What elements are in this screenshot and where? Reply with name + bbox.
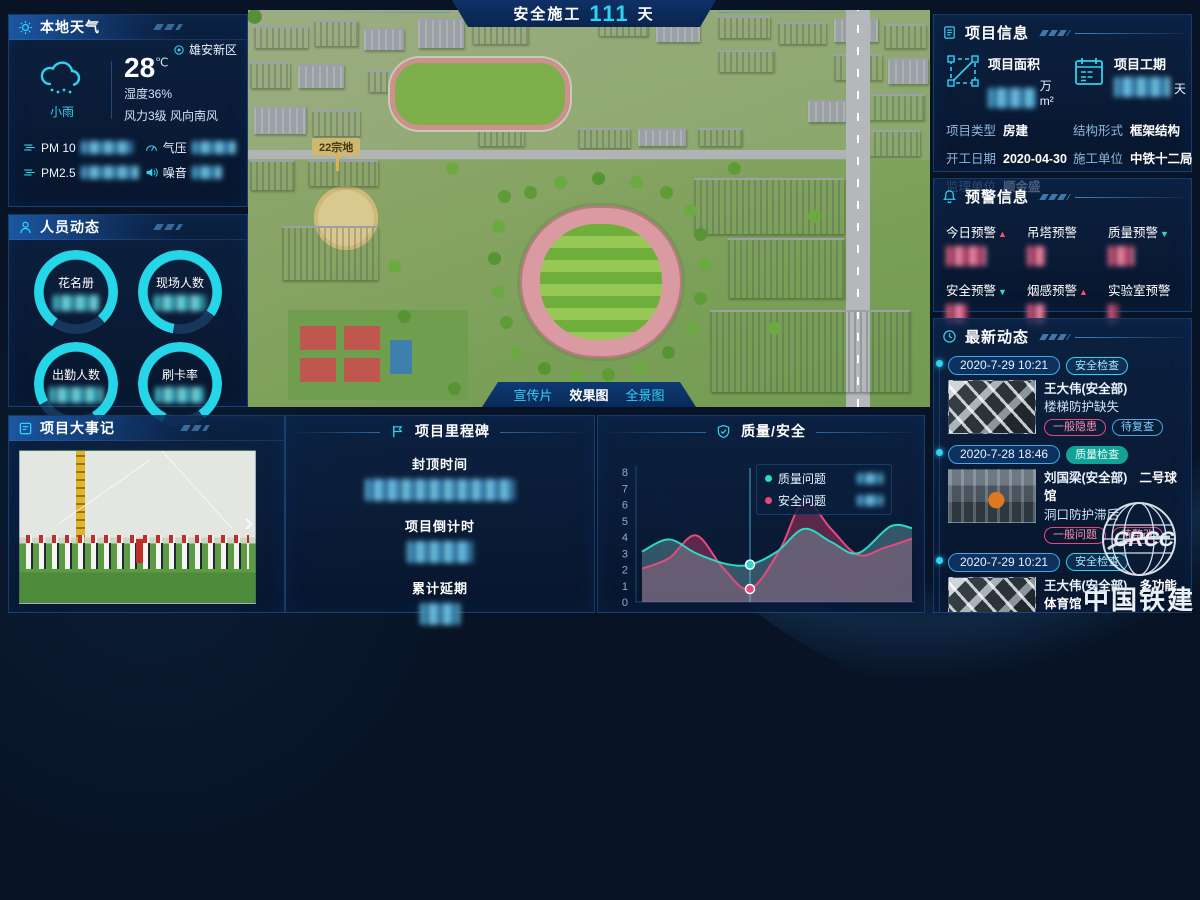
apartment-building bbox=[638, 128, 686, 146]
basketball-court bbox=[344, 358, 380, 382]
redacted-value bbox=[946, 246, 986, 266]
events-panel: 项目大事记 › bbox=[8, 415, 285, 613]
redacted-value bbox=[988, 88, 1036, 108]
crcc-logo-text: 中国铁建 bbox=[1080, 580, 1198, 617]
svg-text:0: 0 bbox=[622, 597, 628, 609]
trees bbox=[248, 10, 261, 23]
weather-current: 小雨 28℃ 湿度36% 风力3级 风向南风 bbox=[25, 54, 237, 125]
site-aerial-view: 22宗地 宣传片 效果图 全景图 bbox=[248, 10, 930, 407]
redacted-value bbox=[53, 295, 99, 311]
cable bbox=[60, 460, 151, 524]
apartment-building bbox=[718, 16, 770, 38]
cloud-rain-icon bbox=[38, 60, 86, 96]
weather-condition: 小雨 bbox=[25, 103, 99, 120]
news-item[interactable]: 2020-7-29 10:21安全检查王大伟(安全部)楼梯防护缺失一般隐患待复查 bbox=[948, 356, 1185, 436]
info-structure: 结构形式框架结构 bbox=[1073, 120, 1193, 139]
fog-icon bbox=[23, 141, 36, 154]
event-photo: › bbox=[19, 450, 256, 604]
basketball-court bbox=[300, 326, 336, 350]
apartment-building bbox=[868, 94, 924, 120]
milestone-delay: 累计延期 bbox=[286, 578, 594, 630]
svg-text:3: 3 bbox=[622, 548, 628, 560]
apartment-building bbox=[478, 128, 524, 146]
trend-up-icon: ▲ bbox=[998, 229, 1007, 239]
humidity: 湿度36% bbox=[124, 85, 218, 104]
redacted-value bbox=[81, 166, 139, 179]
news-date: 2020-7-28 18:46 bbox=[948, 445, 1060, 464]
svg-text:2: 2 bbox=[622, 565, 628, 577]
news-date: 2020-7-29 10:21 bbox=[948, 553, 1060, 572]
news-photo bbox=[948, 469, 1036, 523]
pressure-icon bbox=[145, 141, 158, 154]
location-badge: 雄安新区 bbox=[173, 41, 237, 58]
svg-text:10-11: 10-11 bbox=[898, 611, 925, 612]
redacted-value bbox=[857, 495, 883, 506]
project-info-panel: 项目信息 项目面积 万m² 项目工期 天 项目类型房建 结构形式框架结构 开工日… bbox=[933, 14, 1192, 172]
info-start-date: 开工日期2020-04-30 bbox=[946, 148, 1067, 167]
redacted-value bbox=[407, 541, 473, 563]
apartment-building bbox=[298, 64, 344, 88]
dashboard: { "header": {"label": "安全施工", "days": "1… bbox=[0, 0, 1200, 621]
ring-roster: 花名册 bbox=[34, 250, 118, 334]
news-person: 王大伟(安全部) bbox=[1044, 380, 1163, 398]
tab-rendering[interactable]: 效果图 bbox=[569, 385, 608, 404]
svg-text:10-10: 10-10 bbox=[844, 611, 872, 612]
legend-dot bbox=[765, 497, 772, 504]
info-contractor: 施工单位中铁十二局 bbox=[1073, 148, 1193, 167]
svg-text:10-08: 10-08 bbox=[736, 611, 764, 612]
events-title: 项目大事记 bbox=[40, 418, 115, 438]
apartment-building bbox=[250, 62, 290, 88]
globe-logo-icon: CRCC bbox=[1096, 500, 1182, 578]
project-info-title: 项目信息 bbox=[965, 22, 1029, 43]
warning-0: 今日预警▲ bbox=[946, 222, 1021, 266]
news-issue: 楼梯防护缺失 bbox=[1044, 398, 1163, 416]
plot-label: 22宗地 bbox=[312, 138, 360, 156]
svg-text:4: 4 bbox=[622, 532, 628, 544]
weather-header: 本地天气 bbox=[9, 15, 247, 40]
quality-safety-panel: 质量/安全 01234567810-0610-0710-0810-0910-10… bbox=[597, 415, 925, 613]
stat-duration: 项目工期 天 bbox=[1072, 54, 1186, 108]
safety-days-header: 安全施工 111 天 bbox=[452, 0, 716, 28]
apartment-building bbox=[312, 110, 360, 136]
milestone-panel: 项目里程碑 封顶时间 项目倒计时 累计延期 bbox=[285, 415, 595, 613]
svg-text:10-07: 10-07 bbox=[682, 611, 710, 612]
safety-days-unit: 天 bbox=[638, 3, 655, 24]
project-info-header: 项目信息 bbox=[934, 15, 1191, 48]
school-building bbox=[728, 238, 844, 298]
apartment-building bbox=[578, 128, 630, 148]
fog-icon bbox=[23, 166, 36, 179]
ceremony-sign bbox=[136, 539, 143, 563]
svg-text:5: 5 bbox=[622, 516, 628, 528]
news-type-badge: 质量检查 bbox=[1066, 446, 1128, 464]
divider bbox=[111, 61, 112, 119]
personnel-title: 人员动态 bbox=[40, 217, 100, 237]
trend-down-icon: ▼ bbox=[998, 287, 1007, 297]
news-title: 最新动态 bbox=[965, 326, 1029, 347]
milestone-topping: 封顶时间 bbox=[286, 454, 594, 506]
warnings-panel: 预警信息 今日预警▲吊塔预警质量预警▼安全预警▼烟感预警▲实验室预警 bbox=[933, 178, 1192, 312]
school-building bbox=[694, 178, 844, 234]
clock-icon bbox=[942, 329, 957, 344]
timeline-dot bbox=[936, 449, 943, 456]
ring-attendance: 出勤人数 bbox=[34, 342, 118, 426]
school-building bbox=[282, 226, 378, 280]
chart-title: 质量/安全 bbox=[741, 421, 806, 441]
redacted-value bbox=[420, 603, 460, 625]
person-icon bbox=[18, 220, 33, 235]
news-header: 最新动态 bbox=[934, 319, 1191, 352]
air-metrics: PM 10 气压 PM2.5 噪音 bbox=[23, 139, 237, 181]
redacted-value bbox=[154, 295, 206, 311]
location-label: 雄安新区 bbox=[189, 41, 237, 58]
redacted-value bbox=[81, 141, 133, 154]
redacted-value bbox=[192, 166, 222, 179]
legend-quality: 质量问题 bbox=[765, 470, 883, 487]
redacted-value bbox=[1027, 246, 1045, 266]
svg-text:6: 6 bbox=[622, 500, 628, 512]
gym-building bbox=[710, 310, 910, 392]
mini-stadium bbox=[390, 58, 570, 130]
svg-text:1: 1 bbox=[622, 581, 628, 593]
news-type-badge: 安全检查 bbox=[1066, 357, 1128, 375]
milestone-countdown: 项目倒计时 bbox=[286, 516, 594, 568]
wind: 风力3级 风向南风 bbox=[124, 107, 218, 126]
memo-icon bbox=[18, 421, 33, 436]
trend-down-icon: ▼ bbox=[1160, 229, 1169, 239]
tab-promo-video[interactable]: 宣传片 bbox=[513, 385, 552, 404]
warnings-title: 预警信息 bbox=[965, 186, 1029, 207]
sports-courts bbox=[288, 310, 468, 400]
personnel-panel: 人员动态 花名册 现场人数 出勤人数 刷卡率 bbox=[8, 214, 248, 407]
redacted-value bbox=[49, 387, 103, 403]
location-icon bbox=[173, 44, 185, 56]
apartment-building bbox=[718, 50, 774, 72]
personnel-header: 人员动态 bbox=[9, 215, 247, 240]
warnings-header: 预警信息 bbox=[934, 179, 1191, 212]
apartment-building bbox=[418, 18, 464, 48]
redacted-value bbox=[1108, 246, 1134, 266]
news-photo bbox=[948, 577, 1036, 613]
milestone-title: 项目里程碑 bbox=[415, 421, 490, 441]
crcc-logo: CRCC 中国铁建 bbox=[1080, 500, 1198, 617]
apartment-building bbox=[314, 20, 358, 46]
shield-check-icon bbox=[716, 424, 731, 439]
document-icon bbox=[942, 25, 957, 40]
redacted-value bbox=[1114, 77, 1170, 97]
timeline-dot bbox=[936, 557, 943, 564]
timeline-dot bbox=[936, 360, 943, 367]
ring-onsite: 现场人数 bbox=[138, 250, 222, 334]
svg-text:10-09: 10-09 bbox=[790, 611, 818, 612]
temperature: 28℃ bbox=[124, 54, 218, 82]
redacted-value bbox=[155, 387, 205, 403]
chart-area: 01234567810-0610-0710-0810-0910-1010-11 … bbox=[598, 444, 926, 612]
calendar-icon bbox=[1072, 54, 1106, 88]
cable bbox=[158, 450, 232, 529]
apartment-building bbox=[778, 22, 826, 44]
warning-1: 吊塔预警 bbox=[1027, 222, 1102, 266]
safety-days-label: 安全施工 bbox=[513, 3, 581, 24]
noise-icon bbox=[145, 166, 158, 179]
redacted-value bbox=[192, 141, 236, 154]
metric-pm10: PM 10 bbox=[23, 139, 139, 156]
apartment-building bbox=[250, 160, 294, 190]
basketball-court bbox=[300, 358, 336, 382]
stat-area: 项目面积 万m² bbox=[946, 54, 1062, 108]
warning-2: 质量预警▼ bbox=[1108, 222, 1183, 266]
apartment-building bbox=[254, 106, 306, 134]
apartment-building bbox=[888, 58, 928, 84]
news-tag: 一般隐患 bbox=[1044, 419, 1106, 436]
chart-tooltip: 质量问题 安全问题 bbox=[756, 464, 892, 515]
apartment-building bbox=[364, 28, 404, 50]
track-infield bbox=[540, 224, 662, 340]
basketball-court bbox=[344, 326, 380, 350]
news-date: 2020-7-29 10:21 bbox=[948, 356, 1060, 375]
pool-court bbox=[390, 340, 412, 374]
apartment-building bbox=[884, 24, 926, 48]
redacted-value bbox=[857, 473, 883, 484]
news-place: 二号球馆 bbox=[1044, 471, 1177, 503]
apartment-building bbox=[868, 130, 920, 156]
header-decor-line bbox=[718, 12, 868, 13]
legend-safety: 安全问题 bbox=[765, 492, 883, 509]
redacted-value bbox=[365, 479, 515, 501]
apartment-building bbox=[698, 128, 742, 146]
milestone-header: 项目里程碑 bbox=[286, 416, 594, 444]
svg-text:8: 8 bbox=[622, 467, 628, 479]
metric-noise: 噪音 bbox=[145, 164, 237, 181]
events-header: 项目大事记 bbox=[9, 416, 284, 441]
weather-title: 本地天气 bbox=[40, 17, 100, 37]
ring-swipe-rate: 刷卡率 bbox=[138, 342, 222, 426]
news-photo bbox=[948, 380, 1036, 434]
header-decor-line bbox=[300, 12, 450, 13]
svg-text:10-06: 10-06 bbox=[628, 611, 656, 612]
area-icon bbox=[946, 54, 980, 88]
safety-days-count: 111 bbox=[589, 3, 629, 25]
sun-icon bbox=[18, 20, 33, 35]
metric-pm25: PM2.5 bbox=[23, 164, 139, 181]
svg-text:7: 7 bbox=[622, 483, 628, 495]
school-building bbox=[308, 160, 378, 186]
apartment-building bbox=[254, 26, 308, 48]
trend-up-icon: ▲ bbox=[1079, 287, 1088, 297]
chart-header: 质量/安全 bbox=[598, 416, 924, 444]
info-type: 项目类型房建 bbox=[946, 120, 1067, 139]
crane bbox=[76, 451, 85, 543]
tab-panorama[interactable]: 全景图 bbox=[626, 385, 665, 404]
apartment-building bbox=[472, 24, 528, 44]
metric-pressure: 气压 bbox=[145, 139, 237, 156]
carousel-next-icon[interactable]: › bbox=[244, 509, 253, 535]
view-tabbar: 宣传片 效果图 全景图 bbox=[482, 382, 696, 407]
weather-panel: 本地天气 雄安新区 小雨 28℃ 湿度36% 风力3级 风向南风 PM 10 气… bbox=[8, 14, 248, 207]
news-tag: 待复查 bbox=[1112, 419, 1163, 436]
legend-dot bbox=[765, 475, 772, 482]
bell-icon bbox=[942, 189, 957, 204]
flag-icon bbox=[390, 424, 405, 439]
